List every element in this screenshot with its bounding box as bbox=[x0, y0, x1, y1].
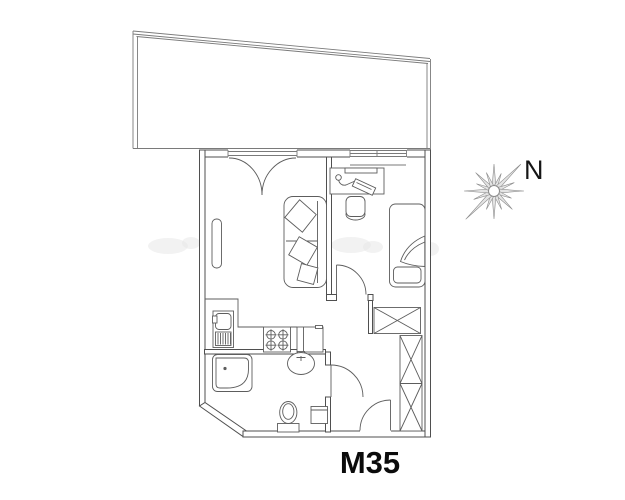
living-room bbox=[212, 197, 327, 288]
bathroom-door bbox=[331, 365, 363, 397]
terrace bbox=[133, 31, 431, 150]
sofa-cushion bbox=[297, 264, 318, 285]
sofa bbox=[284, 197, 327, 288]
stove bbox=[264, 327, 291, 352]
toilet bbox=[278, 402, 300, 433]
tall-cabinet bbox=[297, 326, 323, 353]
bedroom-window bbox=[350, 149, 407, 165]
entrance-door bbox=[360, 400, 391, 436]
compass-star: N bbox=[464, 155, 544, 221]
shower-tray bbox=[213, 355, 253, 392]
radiator bbox=[212, 219, 222, 268]
apartment-walls bbox=[200, 150, 431, 437]
washbasin bbox=[288, 352, 315, 375]
wardrobe bbox=[400, 336, 422, 432]
closet bbox=[374, 308, 421, 334]
floor-plan-canvas: N M35 bbox=[0, 0, 625, 500]
bedroom-door bbox=[337, 265, 367, 295]
washer-unit bbox=[311, 407, 328, 424]
bedroom bbox=[330, 168, 425, 287]
chair bbox=[346, 197, 365, 221]
single-bed bbox=[390, 204, 426, 287]
balcony-door bbox=[228, 149, 297, 195]
kitchen bbox=[205, 299, 323, 352]
kitchen-sink bbox=[213, 311, 234, 348]
unit-label: M35 bbox=[340, 445, 400, 480]
north-label: N bbox=[524, 155, 544, 185]
